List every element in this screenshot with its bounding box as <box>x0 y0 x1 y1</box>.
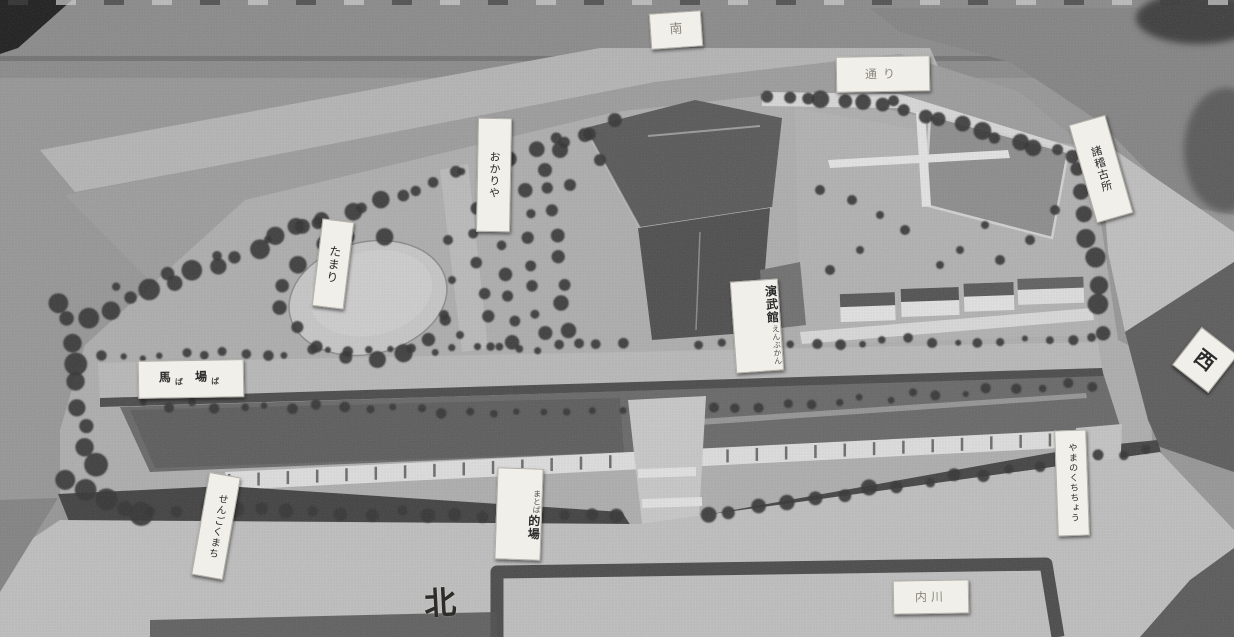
north-mark: 北 <box>423 577 457 625</box>
label-enbukan: 演武館 えんぶかん <box>730 278 784 373</box>
label-okariya: おかりや <box>476 118 512 233</box>
label-yamanokuchi-cho: やまのくちちょう <box>1054 429 1090 536</box>
label-tamari-text: たまり <box>324 244 341 284</box>
label-rear-road-text: 通り <box>865 67 901 80</box>
label-okariya-text: おかりや <box>488 151 500 199</box>
halftone-dots <box>0 0 1234 637</box>
label-matoba-furigana: まとば <box>532 489 541 513</box>
label-baba-text: 馬ば 場ば <box>159 371 223 388</box>
label-keikosho-text: 諸稽古所 <box>1089 144 1113 193</box>
label-enbukan-main: 演武館 <box>764 285 779 325</box>
label-baba: 馬ば 場ば <box>138 359 245 399</box>
model-photograph: 南 通り おかりや たまり 馬ば 場ば 演武館 えんぶかん まとば 的場 せんご… <box>0 0 1234 637</box>
label-uchikawa-text: 内川 <box>915 590 947 603</box>
label-enbukan-furigana: えんぶかん <box>771 324 782 364</box>
label-matoba: まとば 的場 <box>494 467 543 561</box>
label-sengoku-machi-text: せんごくまち <box>205 493 227 560</box>
label-west-text: 西 <box>1191 346 1220 375</box>
label-yamanokuchi-cho-text: やまのくちちょう <box>1066 443 1078 523</box>
label-rear-road: 通り <box>836 55 931 93</box>
label-matoba-main: 的場 <box>527 514 540 540</box>
label-south: 南 <box>649 10 703 50</box>
model-photo-scene <box>0 0 1234 637</box>
label-south-text: 南 <box>669 23 683 38</box>
label-uchikawa: 内川 <box>893 579 970 614</box>
